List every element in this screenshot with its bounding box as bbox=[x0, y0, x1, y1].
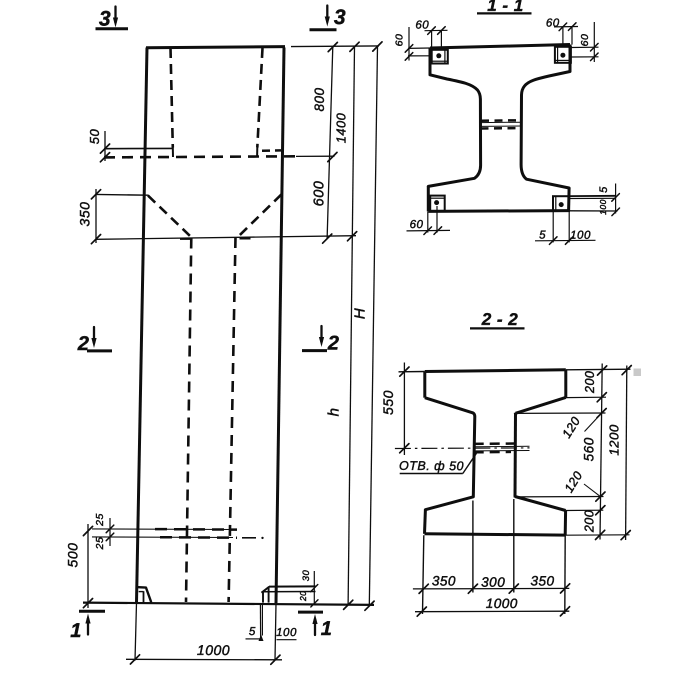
svg-text:600: 600 bbox=[312, 181, 328, 207]
svg-text:350: 350 bbox=[77, 202, 93, 227]
svg-text:1: 1 bbox=[70, 620, 82, 642]
svg-text:60: 60 bbox=[394, 34, 406, 47]
svg-text:100: 100 bbox=[276, 627, 297, 639]
svg-text:5: 5 bbox=[249, 626, 256, 638]
svg-text:60: 60 bbox=[546, 17, 560, 29]
svg-text:350: 350 bbox=[530, 573, 554, 588]
svg-text:1000: 1000 bbox=[197, 642, 230, 658]
svg-text:5: 5 bbox=[539, 229, 546, 241]
svg-text:200: 200 bbox=[582, 510, 596, 533]
svg-text:500: 500 bbox=[65, 543, 81, 568]
svg-text:2: 2 bbox=[327, 332, 340, 354]
svg-text:800: 800 bbox=[312, 87, 327, 111]
svg-text:3: 3 bbox=[99, 7, 111, 30]
svg-text:60: 60 bbox=[579, 34, 591, 47]
svg-text:560: 560 bbox=[582, 437, 597, 461]
svg-text:25: 25 bbox=[94, 513, 106, 527]
svg-text:H: H bbox=[352, 308, 369, 319]
svg-text:3: 3 bbox=[334, 6, 346, 29]
svg-text:5: 5 bbox=[598, 186, 610, 193]
svg-text:1: 1 bbox=[321, 618, 333, 640]
svg-text:50: 50 bbox=[87, 129, 102, 145]
svg-text:200: 200 bbox=[583, 371, 597, 394]
svg-text:1200: 1200 bbox=[606, 424, 621, 456]
svg-text:1000: 1000 bbox=[486, 596, 518, 611]
svg-text:20: 20 bbox=[298, 591, 308, 602]
svg-text:100: 100 bbox=[598, 199, 608, 215]
svg-text:ОТВ. ф 50: ОТВ. ф 50 bbox=[399, 459, 464, 473]
svg-text:1400: 1400 bbox=[334, 112, 349, 143]
svg-text:h: h bbox=[326, 408, 343, 417]
svg-text:25: 25 bbox=[94, 537, 106, 551]
svg-text:30: 30 bbox=[301, 570, 312, 582]
svg-text:300: 300 bbox=[481, 575, 505, 590]
svg-text:2 - 2: 2 - 2 bbox=[481, 310, 519, 329]
svg-text:60: 60 bbox=[415, 19, 429, 31]
svg-text:350: 350 bbox=[432, 573, 456, 588]
svg-text:550: 550 bbox=[380, 390, 396, 415]
svg-text:60: 60 bbox=[410, 219, 424, 231]
